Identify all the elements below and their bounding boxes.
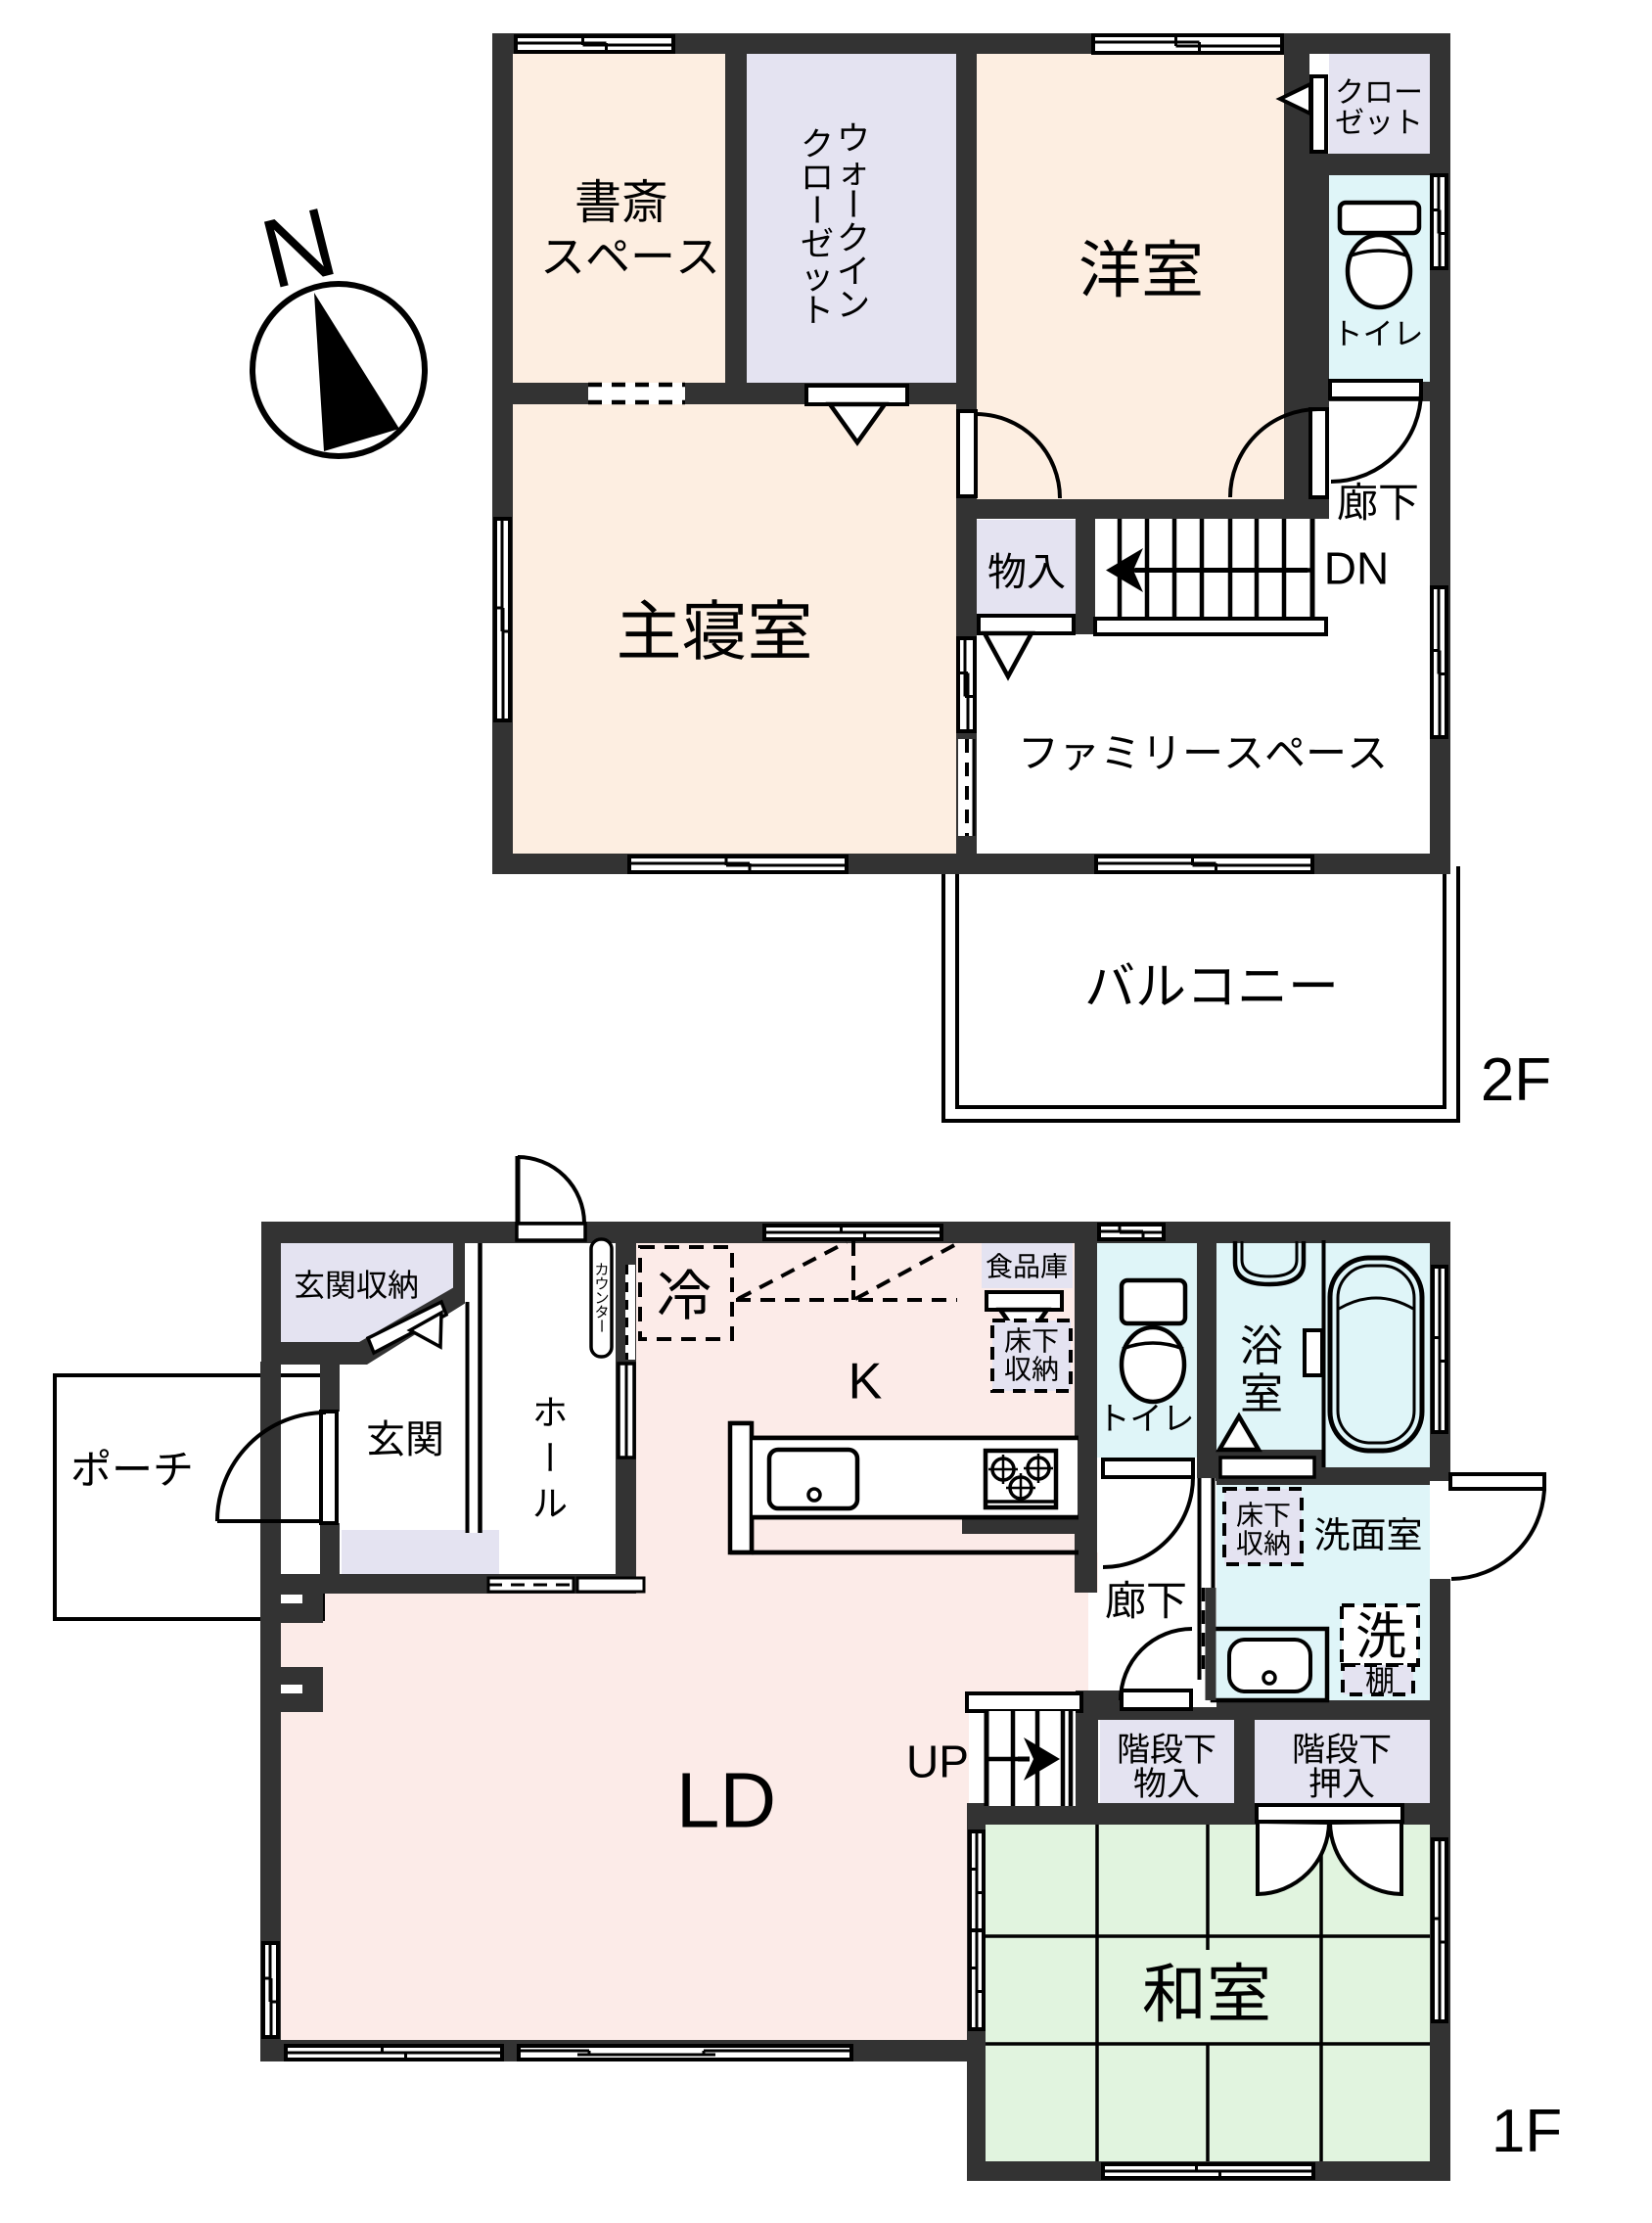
svg-text:2F: 2F: [1481, 1046, 1551, 1114]
svg-text:K: K: [849, 1354, 883, 1411]
svg-text:DN: DN: [1324, 542, 1389, 593]
svg-text:1F: 1F: [1491, 2098, 1562, 2165]
svg-text:UP: UP: [906, 1736, 969, 1786]
svg-text:LD: LD: [676, 1757, 776, 1844]
